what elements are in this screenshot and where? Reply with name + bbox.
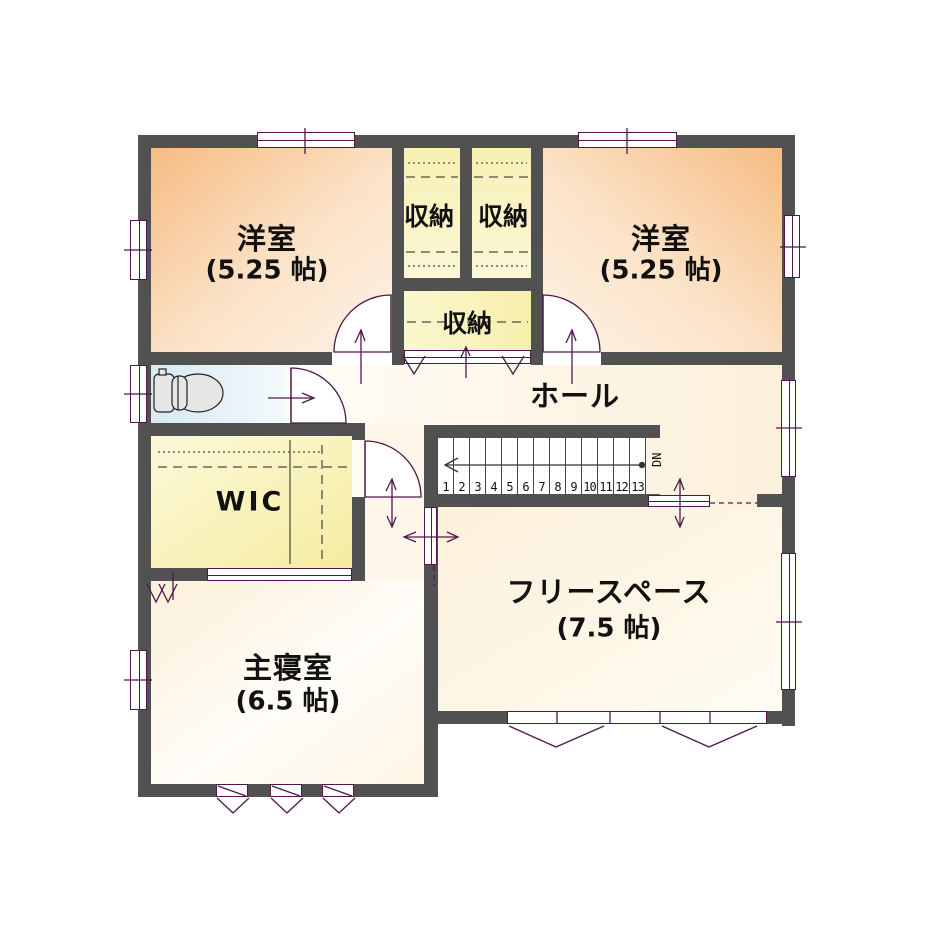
- window-right-free-space: [781, 553, 796, 690]
- stair-step: 13: [629, 438, 645, 494]
- window-right-western: [784, 215, 800, 278]
- wall-stairs-bottom: [424, 494, 660, 507]
- wall-top: [138, 135, 795, 148]
- wall-toilet-south: [138, 423, 365, 436]
- window-left-toilet: [130, 365, 147, 423]
- wic-sliding-door: [207, 568, 352, 581]
- window-master-south-3: [322, 784, 354, 797]
- corridor-free-space-sliding-door: [424, 507, 437, 565]
- wall-closet-horizontal: [392, 278, 543, 291]
- window-master-south-1: [216, 784, 248, 797]
- room-area-free-space: (7.5 帖): [557, 608, 662, 645]
- stair-step: 6: [517, 438, 533, 494]
- room-area-western-left: (5.25 帖): [206, 250, 329, 287]
- wall-stairs-top: [424, 425, 660, 438]
- window-left-western: [130, 220, 147, 280]
- room-label-free-space: フリースペース: [506, 569, 711, 611]
- room-area-western-right: (5.25 帖): [600, 250, 723, 287]
- stair-step: 9: [565, 438, 581, 494]
- window-left-master: [130, 650, 147, 710]
- room-label-hall: ホール: [530, 373, 620, 415]
- staircase: 1 2 3 4 5 6 7 8 9 10 11 12 13: [437, 438, 646, 494]
- wall-closet-mid: [460, 148, 472, 291]
- wall-wic-right-upper: [352, 423, 365, 440]
- window-top-right-room: [578, 132, 677, 148]
- stair-step: 12: [613, 438, 629, 494]
- room-label-wic: WIC: [216, 487, 285, 518]
- room-label-closet-top-right: 収納: [478, 197, 528, 233]
- room-area-master: (6.5 帖): [236, 681, 341, 718]
- wall-closet-right: [531, 148, 543, 352]
- stair-step: 8: [549, 438, 565, 494]
- stair-step: 11: [597, 438, 613, 494]
- corridor-fill: [365, 423, 424, 581]
- stair-step: 3: [469, 438, 485, 494]
- stair-step: 1: [437, 438, 453, 494]
- stairs-down-label: DN: [650, 437, 666, 467]
- door-opening-western-right: [543, 352, 601, 365]
- window-free-space-south: [507, 711, 767, 724]
- stair-step: 2: [453, 438, 469, 494]
- wall-hall-free-stub: [757, 494, 783, 507]
- wall-wic-right-lower: [352, 497, 365, 568]
- toilet-fill: [151, 365, 285, 423]
- hall-free-space-sliding-door: [648, 495, 710, 507]
- stair-step: 7: [533, 438, 549, 494]
- room-label-closet-top-left: 収納: [404, 197, 454, 233]
- window-master-south-2: [270, 784, 302, 797]
- wall-closet-left: [392, 148, 404, 352]
- floor-plan: 1 2 3 4 5 6 7 8 9 10 11 12 13 DN 洋室 (5.2…: [0, 0, 931, 931]
- stair-step: 4: [485, 438, 501, 494]
- stair-step: 5: [501, 438, 517, 494]
- door-opening-western-left: [332, 352, 392, 365]
- window-right-hall: [781, 380, 796, 477]
- stair-step: 10: [581, 438, 597, 494]
- room-label-closet-hall: 収納: [442, 304, 492, 340]
- window-top-left-room: [257, 132, 355, 148]
- closet-hall-sliding-door: [404, 350, 531, 364]
